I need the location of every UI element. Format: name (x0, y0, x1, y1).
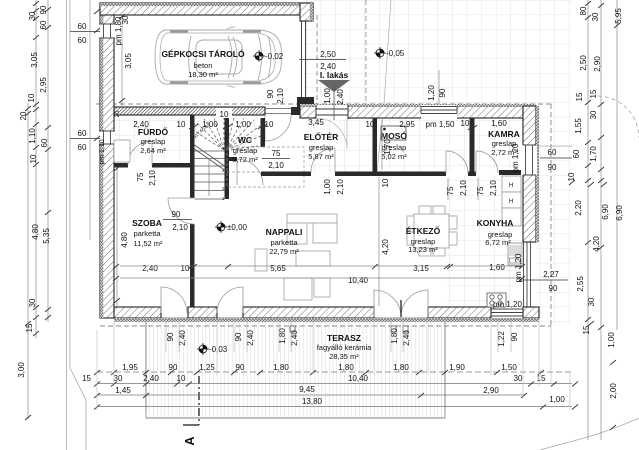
svg-text:10: 10 (29, 154, 38, 163)
svg-text:30: 30 (587, 297, 596, 306)
svg-text:10: 10 (177, 374, 186, 383)
svg-text:20: 20 (19, 111, 28, 120)
svg-text:60: 60 (78, 143, 87, 152)
svg-text:2,10: 2,10 (336, 179, 345, 195)
svg-text:1,70: 1,70 (383, 139, 392, 155)
svg-text:2,27: 2,27 (543, 270, 559, 279)
svg-text:2,40: 2,40 (246, 330, 255, 346)
svg-text:1,25: 1,25 (199, 363, 215, 372)
svg-text:2,10: 2,10 (268, 161, 284, 170)
svg-text:2,55: 2,55 (576, 276, 585, 292)
svg-text:1,70: 1,70 (589, 146, 598, 162)
svg-text:1,60: 1,60 (489, 263, 505, 272)
svg-text:2,95: 2,95 (39, 77, 48, 93)
svg-text:90: 90 (169, 363, 178, 372)
svg-text:3,05: 3,05 (124, 53, 133, 69)
svg-text:13,80: 13,80 (302, 397, 323, 406)
svg-text:4,80: 4,80 (31, 224, 40, 240)
svg-text:±0,00: ±0,00 (227, 223, 248, 232)
svg-text:15: 15 (582, 325, 591, 334)
svg-text:30: 30 (591, 12, 600, 21)
svg-text:80: 80 (579, 6, 588, 15)
svg-text:3,45: 3,45 (308, 118, 324, 127)
svg-text:1,95: 1,95 (122, 363, 138, 372)
svg-text:28,35 m²: 28,35 m² (329, 352, 359, 361)
svg-text:15: 15 (575, 92, 584, 101)
svg-text:SZOBA: SZOBA (132, 218, 162, 228)
svg-text:TERASZ: TERASZ (327, 333, 361, 343)
svg-text:1,90: 1,90 (449, 363, 465, 372)
svg-text:1,00: 1,00 (323, 179, 332, 195)
svg-text:90: 90 (549, 284, 558, 293)
svg-text:pm 1,10: pm 1,10 (99, 139, 106, 164)
svg-text:1,00: 1,00 (235, 120, 251, 129)
svg-text:greslap: greslap (309, 143, 334, 152)
svg-text:beton: beton (194, 61, 213, 70)
svg-text:90: 90 (166, 332, 175, 341)
svg-text:fagyálló kerámia: fagyálló kerámia (317, 343, 372, 352)
svg-text:2,64 m²: 2,64 m² (140, 146, 166, 155)
svg-text:1,00: 1,00 (323, 88, 332, 104)
svg-text:2,40: 2,40 (143, 374, 159, 383)
svg-text:parketta: parketta (270, 238, 298, 247)
svg-text:10: 10 (567, 172, 576, 181)
svg-text:75: 75 (476, 186, 485, 195)
svg-text:H: H (509, 183, 513, 189)
svg-text:90: 90 (510, 332, 519, 341)
svg-text:1,55: 1,55 (574, 118, 583, 134)
svg-text:10: 10 (366, 120, 375, 129)
svg-text:2,50: 2,50 (320, 50, 336, 59)
svg-text:2,10: 2,10 (276, 88, 285, 104)
svg-text:90: 90 (172, 210, 181, 219)
svg-text:60: 60 (78, 129, 87, 138)
svg-text:4,80: 4,80 (120, 232, 129, 248)
svg-text:5,95: 5,95 (614, 8, 623, 24)
svg-text:10: 10 (27, 93, 36, 102)
svg-text:-0,03: -0,03 (209, 345, 228, 354)
svg-text:60: 60 (40, 138, 49, 147)
svg-text:13,23 m²: 13,23 m² (408, 245, 438, 254)
svg-text:60: 60 (78, 36, 87, 45)
svg-text:2,90: 2,90 (593, 56, 602, 72)
svg-text:10,40: 10,40 (348, 276, 369, 285)
svg-text:1,50: 1,50 (501, 363, 517, 372)
svg-text:5,35: 5,35 (42, 228, 51, 244)
svg-text:30: 30 (28, 11, 37, 20)
svg-text:2,10: 2,10 (148, 170, 157, 186)
svg-text:75: 75 (446, 186, 455, 195)
svg-text:5,65: 5,65 (270, 264, 286, 273)
svg-text:2,40: 2,40 (133, 120, 149, 129)
svg-text:1,22: 1,22 (497, 331, 506, 347)
svg-text:2,40: 2,40 (178, 330, 187, 346)
svg-text:ÉTKEZŐ: ÉTKEZŐ (406, 225, 441, 236)
svg-text:2,40: 2,40 (336, 89, 345, 105)
svg-text:10: 10 (177, 120, 186, 129)
svg-text:60: 60 (39, 20, 48, 29)
svg-text:-0,05: -0,05 (386, 49, 405, 58)
svg-text:1,80: 1,80 (338, 363, 354, 372)
svg-text:1,20: 1,20 (427, 85, 436, 101)
svg-text:60: 60 (572, 149, 581, 158)
svg-text:90: 90 (548, 163, 557, 172)
svg-text:0,72 m²: 0,72 m² (232, 155, 258, 164)
svg-text:20: 20 (115, 110, 121, 117)
svg-text:90: 90 (266, 89, 275, 98)
svg-text:90: 90 (234, 332, 243, 341)
svg-text:30: 30 (589, 110, 598, 119)
svg-text:2,20: 2,20 (574, 200, 583, 216)
svg-text:60: 60 (78, 22, 87, 31)
svg-text:6,72 m²: 6,72 m² (485, 238, 511, 247)
svg-text:1,80: 1,80 (278, 328, 287, 344)
svg-text:3,15: 3,15 (413, 264, 429, 273)
svg-text:15: 15 (589, 89, 598, 98)
svg-text:parketta: parketta (133, 229, 161, 238)
svg-text:2,40: 2,40 (142, 264, 158, 273)
svg-text:NAPPALI: NAPPALI (266, 227, 303, 237)
svg-text:6,90: 6,90 (615, 205, 624, 221)
svg-text:15: 15 (82, 374, 91, 383)
svg-text:4,20: 4,20 (381, 239, 390, 255)
svg-text:-0,02: -0,02 (265, 52, 284, 61)
svg-text:2,00: 2,00 (609, 383, 618, 399)
svg-text:1,10: 1,10 (28, 128, 37, 144)
svg-text:greslap: greslap (141, 137, 166, 146)
svg-text:5,87 m²: 5,87 m² (308, 152, 334, 161)
svg-text:greslap: greslap (233, 146, 258, 155)
svg-text:3,05: 3,05 (30, 52, 39, 68)
svg-text:2,10: 2,10 (489, 180, 498, 196)
svg-text:9,45: 9,45 (299, 385, 315, 394)
svg-text:30: 30 (514, 374, 523, 383)
svg-text:1,45: 1,45 (115, 386, 131, 395)
svg-text:WC: WC (238, 135, 252, 145)
svg-text:75: 75 (136, 172, 145, 181)
svg-text:ELŐTÉR: ELŐTÉR (304, 131, 338, 142)
svg-text:30: 30 (121, 15, 130, 24)
svg-text:KONYHA: KONYHA (477, 218, 514, 228)
svg-text:1,60: 1,60 (491, 119, 507, 128)
svg-text:10,40: 10,40 (348, 374, 369, 383)
svg-text:GÉPKOCSI TÁROLÓ: GÉPKOCSI TÁROLÓ (161, 48, 245, 59)
svg-text:15: 15 (25, 323, 34, 332)
svg-text:1,00: 1,00 (549, 395, 565, 404)
svg-text:1,00: 1,00 (607, 332, 616, 348)
svg-text:pm 1,50: pm 1,50 (426, 120, 455, 129)
svg-text:2,10: 2,10 (172, 223, 188, 232)
svg-text:I. lakás: I. lakás (320, 70, 349, 80)
svg-text:2,40: 2,40 (402, 330, 411, 346)
svg-text:A: A (182, 436, 197, 446)
svg-text:30: 30 (28, 298, 37, 307)
svg-text:90: 90 (39, 5, 48, 14)
svg-text:2,50: 2,50 (579, 55, 588, 71)
svg-text:22,79 m²: 22,79 m² (269, 247, 299, 256)
svg-text:6,90: 6,90 (601, 204, 610, 220)
svg-text:90: 90 (236, 363, 245, 372)
svg-text:1,80: 1,80 (393, 363, 409, 372)
svg-text:2,10: 2,10 (459, 180, 468, 196)
svg-text:4,20: 4,20 (592, 236, 601, 252)
svg-text:10: 10 (461, 119, 470, 128)
svg-text:2,95: 2,95 (399, 120, 415, 129)
svg-text:pm 1,20: pm 1,20 (493, 300, 522, 309)
svg-text:10: 10 (381, 178, 390, 187)
svg-text:3,00: 3,00 (17, 362, 26, 378)
svg-text:60: 60 (548, 148, 557, 157)
svg-text:2,40: 2,40 (320, 62, 336, 71)
svg-text:2,40: 2,40 (290, 330, 299, 346)
svg-text:15: 15 (537, 374, 546, 383)
svg-text:75: 75 (272, 149, 281, 158)
svg-text:pm 1,20: pm 1,20 (511, 143, 520, 172)
svg-text:KAMRA: KAMRA (488, 129, 520, 139)
svg-text:1,80: 1,80 (273, 363, 289, 372)
svg-text:1,80: 1,80 (390, 328, 399, 344)
svg-text:30: 30 (114, 374, 123, 383)
svg-text:18,30 m²: 18,30 m² (188, 70, 218, 79)
svg-text:H: H (509, 199, 513, 205)
svg-text:10: 10 (220, 110, 229, 119)
svg-text:11,52 m²: 11,52 m² (133, 239, 163, 248)
svg-text:2,90: 2,90 (483, 386, 499, 395)
